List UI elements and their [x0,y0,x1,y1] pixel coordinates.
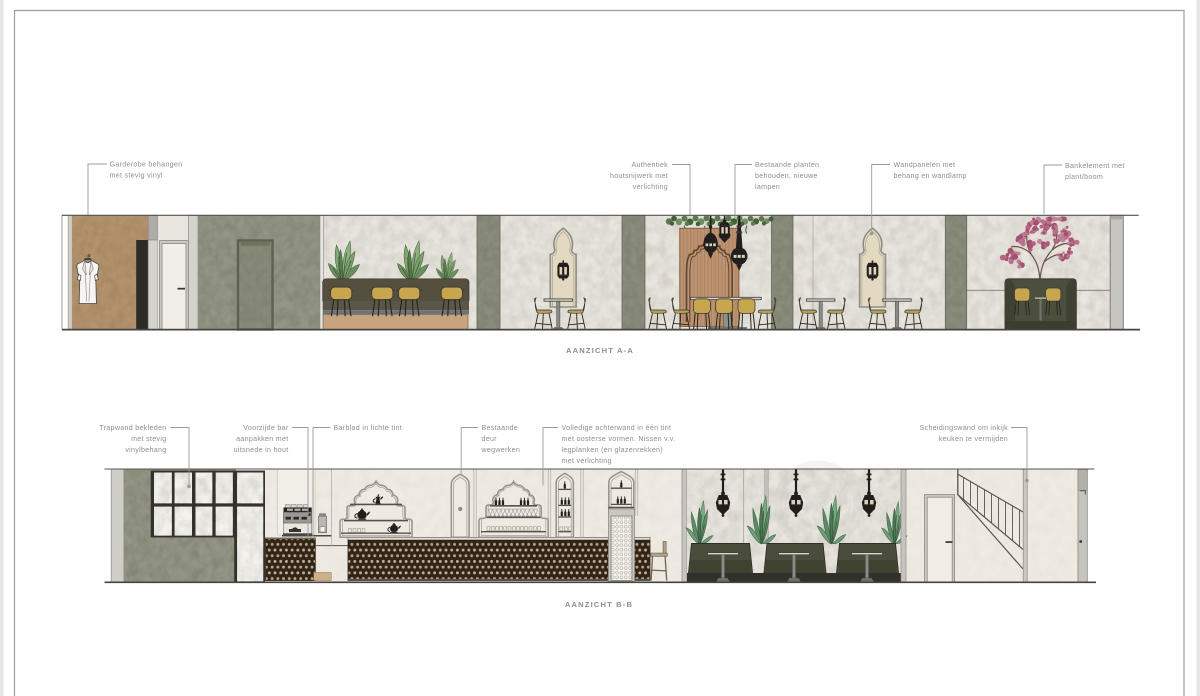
svg-text:uitsnede in hout: uitsnede in hout [234,446,289,454]
svg-text:wegwerken: wegwerken [481,446,521,454]
svg-text:houtsnijwerk met: houtsnijwerk met [610,172,668,180]
svg-text:met stevig: met stevig [131,435,166,443]
svg-text:Garderobe behangen: Garderobe behangen [110,161,183,169]
svg-text:plant/boom: plant/boom [1065,173,1103,181]
svg-text:Barblad in lichte tint: Barblad in lichte tint [334,424,403,432]
svg-text:Bankelement met: Bankelement met [1065,162,1125,170]
svg-text:AANZICHT B-B: AANZICHT B-B [565,600,633,609]
svg-text:behang en wandlamp: behang en wandlamp [894,172,967,180]
svg-text:Trapwand bekleden: Trapwand bekleden [99,424,166,432]
svg-text:met verlichting: met verlichting [562,457,612,465]
svg-text:behouden, nieuwe: behouden, nieuwe [755,172,818,180]
svg-text:aanpakken met: aanpakken met [236,435,288,443]
svg-text:vinylbehang: vinylbehang [125,446,166,454]
svg-text:Authentiek: Authentiek [631,161,668,169]
svg-text:Volledige achterwand in één ti: Volledige achterwand in één tint [562,424,672,432]
svg-text:Bestaande planten: Bestaande planten [755,161,819,169]
svg-text:Wandpanelen met: Wandpanelen met [894,161,956,169]
svg-text:deur: deur [482,435,498,443]
svg-text:Bestaande: Bestaande [482,424,519,432]
svg-text:Voorzijde bar: Voorzijde bar [243,424,289,432]
svg-text:keuken te vermijden: keuken te vermijden [939,435,1008,443]
svg-text:Scheidingswand om inkijk: Scheidingswand om inkijk [920,424,1009,432]
svg-text:met oosterse vormen. Nissen v.: met oosterse vormen. Nissen v.v. [562,435,676,443]
svg-text:legplanken (en glazenrekken): legplanken (en glazenrekken) [562,446,663,454]
svg-text:met stevig vinyl: met stevig vinyl [110,172,163,180]
svg-text:AANZICHT A-A: AANZICHT A-A [566,346,634,355]
svg-text:lampen: lampen [755,183,780,191]
svg-text:verlichting: verlichting [633,183,668,191]
